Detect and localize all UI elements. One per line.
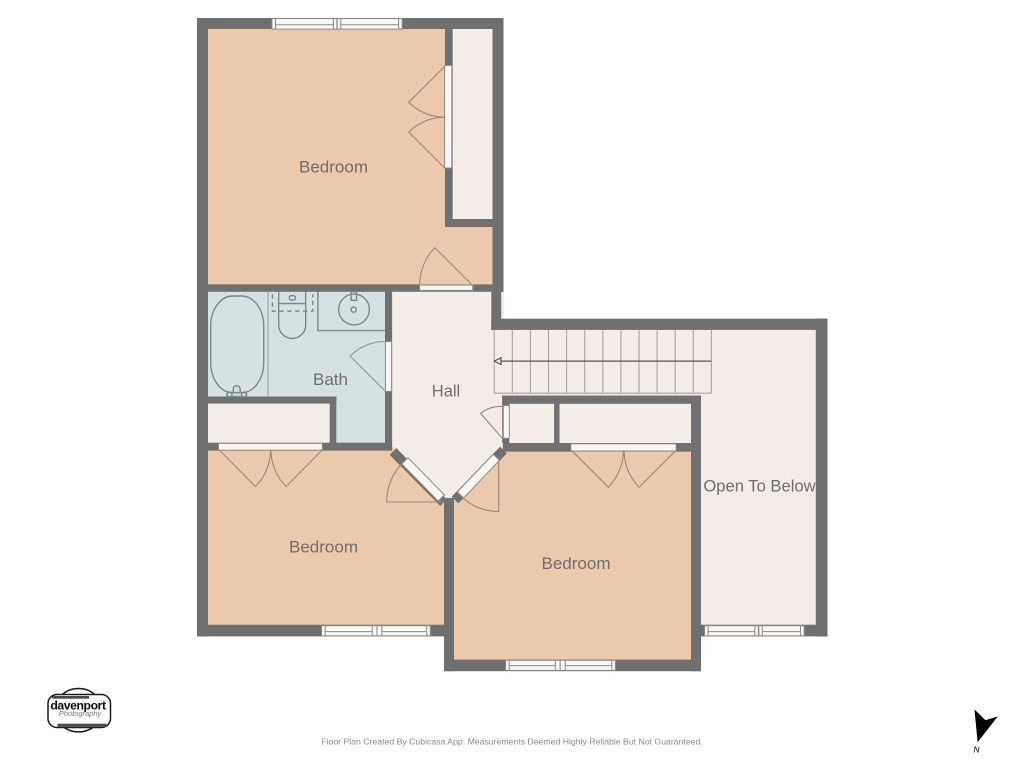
svg-text:Bath: Bath [313, 370, 348, 389]
svg-text:Photography: Photography [59, 709, 103, 718]
svg-text:Bedroom: Bedroom [299, 158, 368, 177]
svg-text:Hall: Hall [432, 382, 460, 400]
svg-text:Bedroom: Bedroom [542, 554, 611, 573]
svg-text:N: N [973, 745, 980, 755]
svg-text:Open To Below: Open To Below [703, 476, 816, 495]
svg-text:Floor Plan Created By Cubicasa: Floor Plan Created By Cubicasa App. Meas… [321, 736, 702, 746]
svg-text:Bedroom: Bedroom [289, 538, 358, 557]
